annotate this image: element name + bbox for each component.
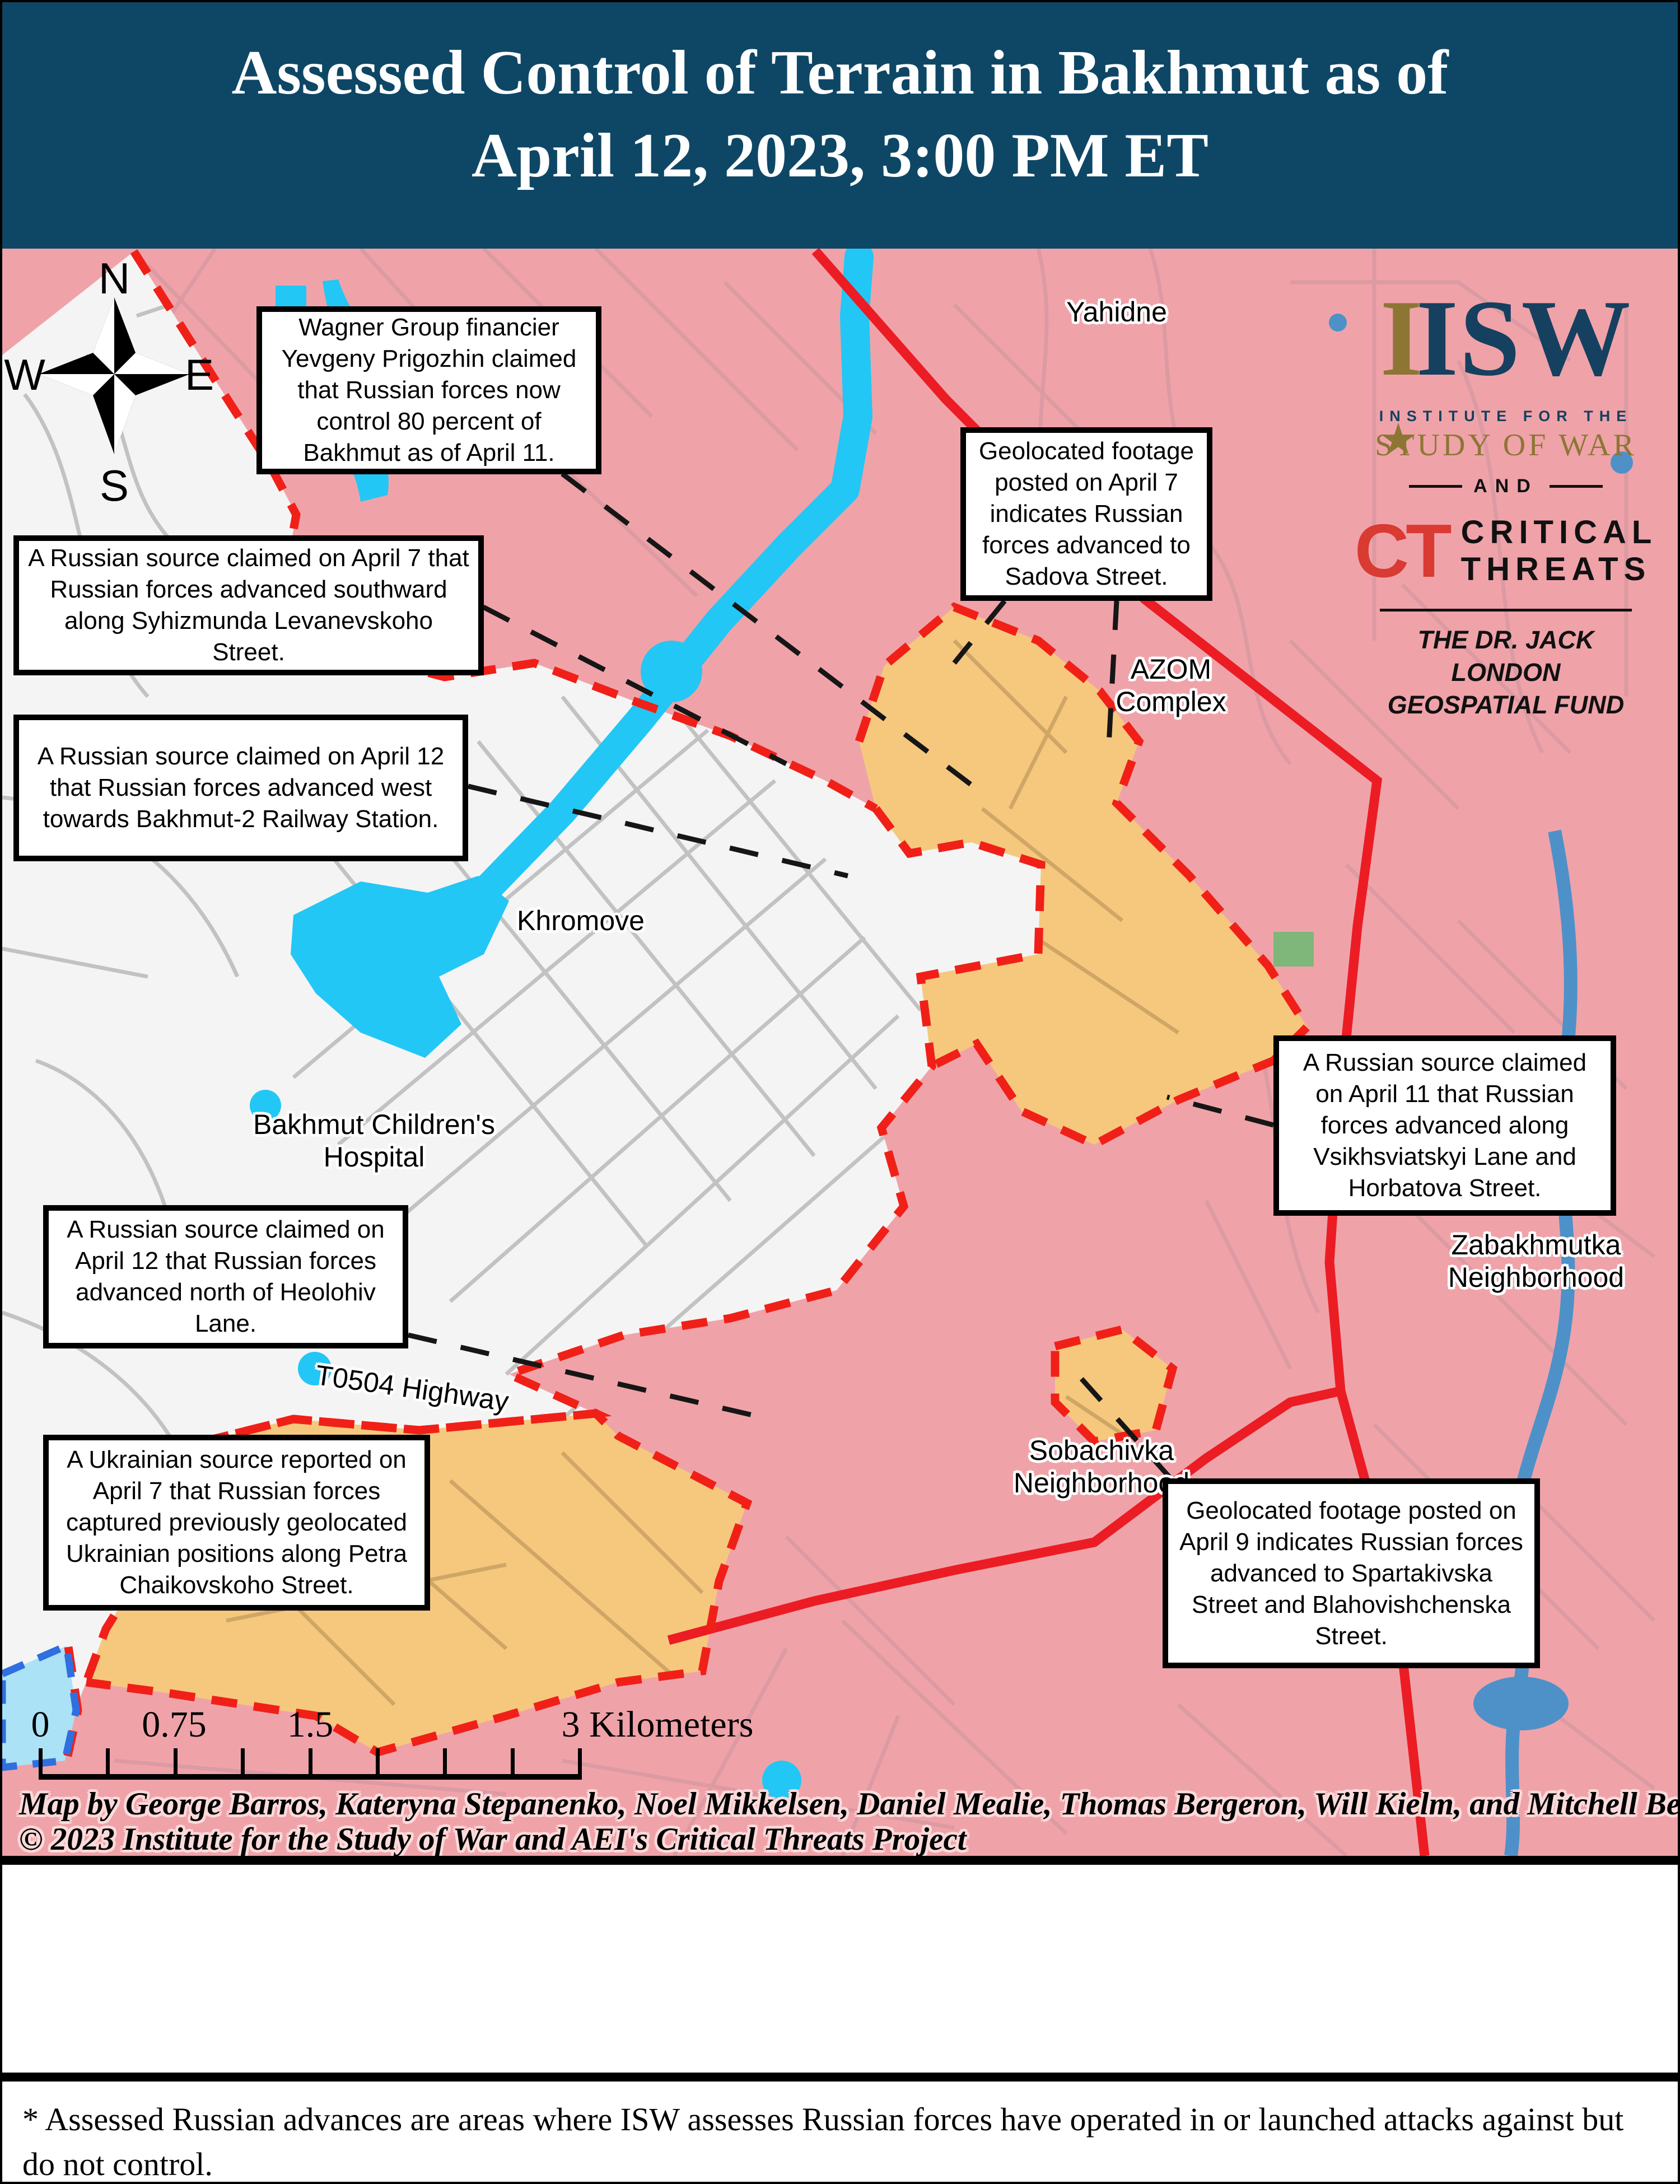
scale-segment <box>309 1748 376 1774</box>
label-hospital-line1: Bakhmut Children's <box>253 1108 495 1141</box>
label-zabakhmutka-line1: Zabakhmutka <box>1448 1229 1624 1261</box>
callout-bakhmut2-railway: A Russian source claimed on April 12 tha… <box>13 715 468 861</box>
label-azom-line1: AZOM <box>1116 653 1226 685</box>
callout-wagner-prigozhin: Wagner Group financier Yevgeny Prigozhin… <box>256 306 601 474</box>
scale-bar <box>39 1748 582 1780</box>
scale-segment <box>241 1748 308 1774</box>
label-hospital-line2: Hospital <box>253 1141 495 1173</box>
divider-line-right <box>1550 485 1603 488</box>
scale-0: 0 <box>31 1704 50 1746</box>
label-zabakhmutka-line2: Neighborhood <box>1448 1261 1624 1294</box>
geospatial-fund-text: THE DR. JACK LONDON GEOSPATIAL FUND <box>1369 624 1643 721</box>
credits-authors: Map by George Barros, Kateryna Stepanenk… <box>19 1786 1680 1822</box>
scale-segment <box>174 1748 241 1774</box>
title-line1: Assessed Control of Terrain in Bakhmut a… <box>2 31 1678 114</box>
compass-west: W <box>4 350 45 399</box>
fund-line1: THE DR. JACK LONDON <box>1369 624 1643 689</box>
scale-15: 1.5 <box>287 1704 334 1746</box>
callout-heolohiv-lane: A Russian source claimed on April 12 tha… <box>43 1205 408 1348</box>
callout-spartakivska-blahovishchenska: Geolocated footage posted on April 9 ind… <box>1163 1478 1540 1668</box>
compass-south: S <box>100 461 129 510</box>
scale-segment <box>106 1748 173 1774</box>
callout-syhizmunda-levanevskoho: A Russian source claimed on April 7 that… <box>13 535 484 675</box>
label-azom-line2: Complex <box>1116 685 1226 718</box>
footnote-section: * Assessed Russian advances are areas wh… <box>2 2073 1680 2184</box>
footnote-text: * Assessed Russian advances are areas wh… <box>22 2097 1660 2184</box>
label-azom-complex: AZOM Complex <box>1116 653 1226 718</box>
critical-text: CRITICAL <box>1461 514 1658 551</box>
fund-line2: GEOSPATIAL FUND <box>1369 689 1643 721</box>
logo-divider-line <box>1380 609 1632 612</box>
isw-letters: ISW <box>1416 278 1631 399</box>
legend: Significant Fighting in the past 24 Hour… <box>2 1856 1680 2073</box>
scale-segment <box>39 1748 106 1774</box>
scale-segment <box>376 1748 443 1774</box>
scale-3km: 3 Kilometers <box>562 1704 754 1746</box>
label-khromove: Khromove <box>517 904 645 937</box>
callout-petra-chaikovskoho: A Ukrainian source reported on April 7 t… <box>43 1435 430 1611</box>
critical-threats-logo: CT CRITICAL THREATS <box>1369 507 1643 594</box>
label-zabakhmutka: Zabakhmutka Neighborhood <box>1448 1229 1624 1294</box>
title-line2: April 12, 2023, 3:00 PM ET <box>2 114 1678 197</box>
and-text: AND <box>1473 475 1538 497</box>
credits-copyright: © 2023 Institute for the Study of War an… <box>19 1821 967 1858</box>
park-patch <box>1273 932 1314 967</box>
isw-star-icon: ★ <box>1379 383 1418 495</box>
label-sobachivka-line1: Sobachivka <box>1014 1434 1189 1467</box>
isw-wordmark: IISW ★ <box>1369 282 1643 400</box>
threats-text: THREATS <box>1461 551 1658 588</box>
page-title: Assessed Control of Terrain in Bakhmut a… <box>2 2 1678 249</box>
scale-075: 0.75 <box>142 1704 207 1746</box>
scale-segment <box>443 1748 510 1774</box>
compass-east: E <box>185 350 214 399</box>
isw-bakhmut-map-graphic: Assessed Control of Terrain in Bakhmut a… <box>0 0 1680 2184</box>
isw-ct-logo: IISW ★ INSTITUTE FOR THE STUDY OF WAR AN… <box>1369 282 1643 721</box>
label-bakhmut-childrens-hospital: Bakhmut Children's Hospital <box>253 1108 495 1173</box>
compass-north: N <box>99 254 130 303</box>
callout-sadova-street: Geolocated footage posted on April 7 ind… <box>960 427 1212 601</box>
ct-monogram-icon: CT <box>1355 507 1449 594</box>
scale-segment <box>511 1748 582 1774</box>
callout-vsikhsviatskyi-horbatova: A Russian source claimed on April 11 tha… <box>1273 1035 1616 1216</box>
label-yahidne: Yahidne <box>1066 296 1167 328</box>
